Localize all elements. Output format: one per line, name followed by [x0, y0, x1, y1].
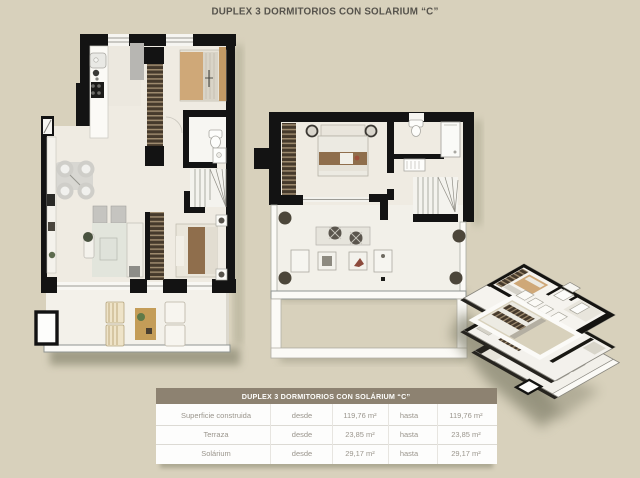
svg-text:Terraza: Terraza — [203, 430, 229, 439]
svg-text:29,17 m²: 29,17 m² — [345, 449, 375, 458]
svg-text:hasta: hasta — [400, 449, 419, 458]
svg-text:23,85 m²: 23,85 m² — [345, 430, 375, 439]
svg-text:Solárium: Solárium — [201, 449, 231, 458]
svg-text:desde: desde — [292, 430, 312, 439]
svg-text:23,85 m²: 23,85 m² — [451, 430, 481, 439]
svg-text:DUPLEX 3 DORMITORIOS CON SOLAR: DUPLEX 3 DORMITORIOS CON SOLARIUM “C” — [211, 7, 438, 18]
svg-text:29,17 m²: 29,17 m² — [451, 449, 481, 458]
svg-text:hasta: hasta — [400, 411, 419, 420]
svg-text:119,76 m²: 119,76 m² — [343, 411, 377, 420]
svg-text:desde: desde — [292, 411, 312, 420]
svg-text:desde: desde — [292, 449, 312, 458]
svg-text:119,76 m²: 119,76 m² — [449, 411, 483, 420]
svg-text:DUPLEX 3 DORMITORIOS CON SOLÁR: DUPLEX 3 DORMITORIOS CON SOLÁRIUM “C” — [242, 392, 411, 401]
svg-text:Superficie construida: Superficie construida — [181, 411, 252, 420]
svg-text:hasta: hasta — [400, 430, 419, 439]
